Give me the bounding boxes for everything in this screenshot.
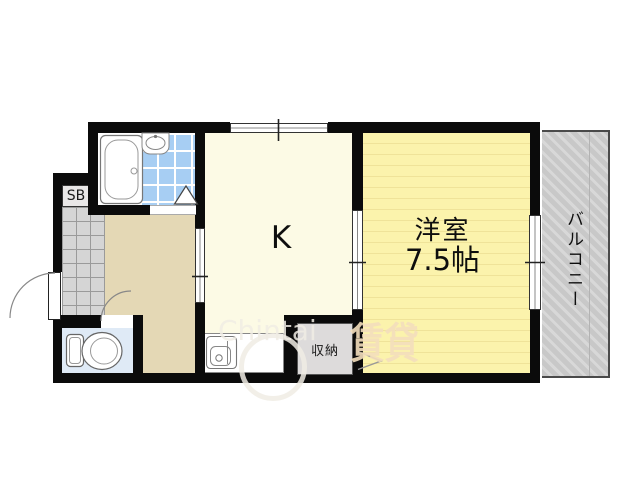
bathtub-icon bbox=[101, 136, 143, 204]
western-room-label: 洋室 7.5帖 bbox=[375, 218, 510, 276]
toilet-door-arc bbox=[101, 291, 131, 321]
bath-sink-icon bbox=[142, 133, 169, 154]
western-room-name: 洋室 bbox=[375, 218, 510, 245]
bathroom-door-icon bbox=[175, 186, 198, 204]
kitchen-sink-icon bbox=[207, 337, 237, 369]
western-room-size: 7.5帖 bbox=[375, 245, 510, 275]
kitchen-label: K bbox=[258, 220, 304, 256]
entrance-door-arc bbox=[10, 273, 55, 318]
balcony-label: バルコニー bbox=[556, 185, 586, 335]
closet-door-chevron bbox=[358, 352, 381, 370]
fixtures-layer bbox=[0, 0, 640, 480]
floor-plan: SB 収納 bbox=[0, 0, 640, 480]
toilet-icon bbox=[67, 333, 123, 370]
